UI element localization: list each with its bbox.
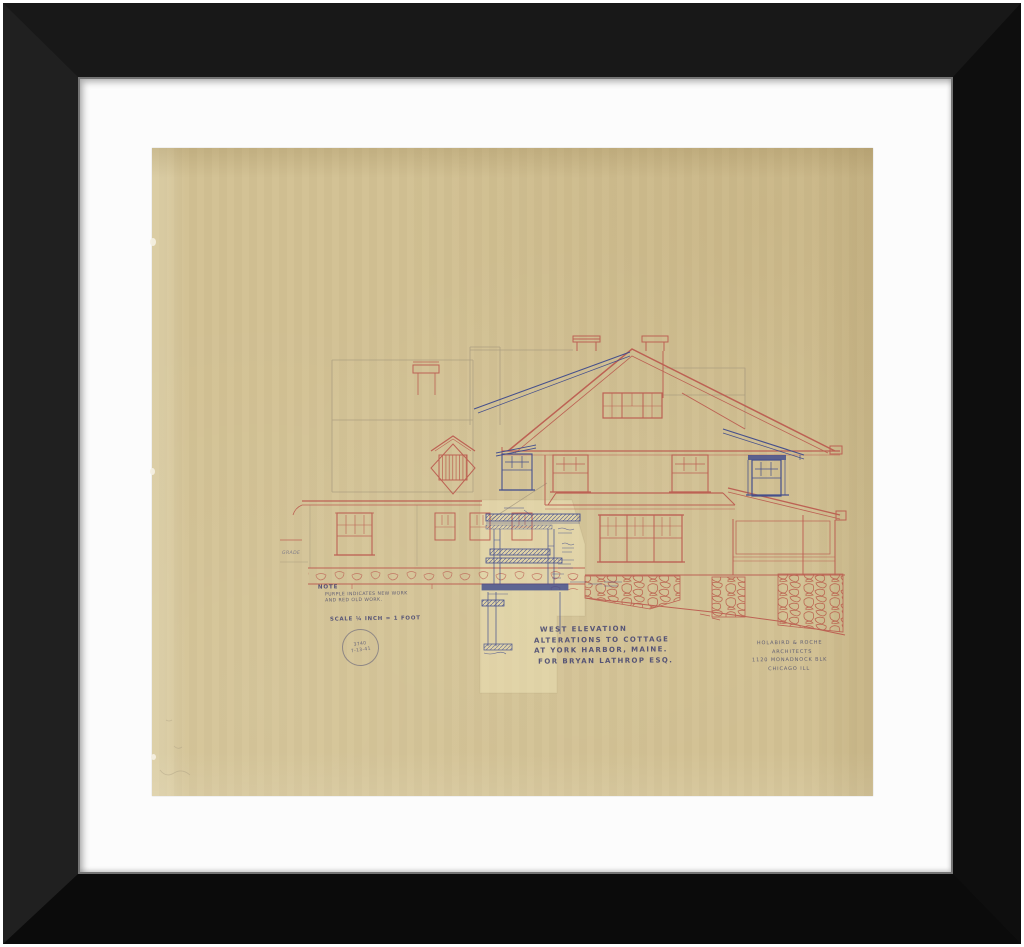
architect-line: CHICAGO ILL [768, 665, 827, 672]
grade-label: GRADE [282, 551, 300, 556]
note-line: PURPLE INDICATES NEW WORK [325, 591, 408, 597]
architect-line: 1120 MONADNOCK BLK [752, 657, 827, 664]
title-block: WEST ELEVATION ALTERATIONS TO COTTAGE AT… [534, 624, 674, 668]
note-block: NOTE PURPLE INDICATES NEW WORK AND RED O… [318, 583, 408, 603]
new-roof-plane-left [474, 352, 630, 413]
paper-chip [151, 754, 156, 760]
second-floor-windows [550, 455, 711, 492]
pencil-scribbles [160, 720, 190, 775]
gable-window [603, 393, 662, 418]
diamond-gable-ornament [431, 436, 475, 494]
mat-board: GRADE NOTE PURPLE INDICATES NEW WORK AND… [78, 77, 953, 874]
title-line: AT YORK HARBOR, MAINE. [534, 645, 673, 654]
stamp-date: 7-13-41 [351, 646, 372, 655]
new-window-left [496, 445, 536, 490]
scale-label: SCALE ¼ INCH = 1 FOOT [330, 615, 421, 622]
elevation-drawing [152, 148, 873, 796]
framed-artwork-photo: GRADE NOTE PURPLE INDICATES NEW WORK AND… [0, 0, 1024, 947]
main-gable-roof [502, 349, 842, 455]
first-floor-triple-window [597, 515, 685, 562]
new-window-right [746, 455, 789, 496]
note-title: NOTE [318, 583, 408, 590]
title-line: ALTERATIONS TO COTTAGE [534, 635, 673, 644]
title-line: WEST ELEVATION [540, 624, 673, 633]
architect-line: ARCHITECTS [772, 648, 827, 654]
mid-hip-roof-band [545, 455, 735, 509]
architect-line: HOLABIRD & ROCHE [757, 640, 827, 647]
paper-chip [150, 238, 156, 246]
pencil-massing-lines [160, 347, 748, 775]
architect-block: HOLABIRD & ROCHE ARCHITECTS 1120 MONADNO… [752, 640, 828, 675]
drawing-sheet: GRADE NOTE PURPLE INDICATES NEW WORK AND… [152, 148, 873, 796]
wing-chimney [413, 362, 439, 395]
picture-frame: GRADE NOTE PURPLE INDICATES NEW WORK AND… [3, 3, 1021, 944]
title-line: FOR BRYAN LATHROP ESQ. [538, 656, 673, 665]
paper-chip [150, 468, 155, 475]
